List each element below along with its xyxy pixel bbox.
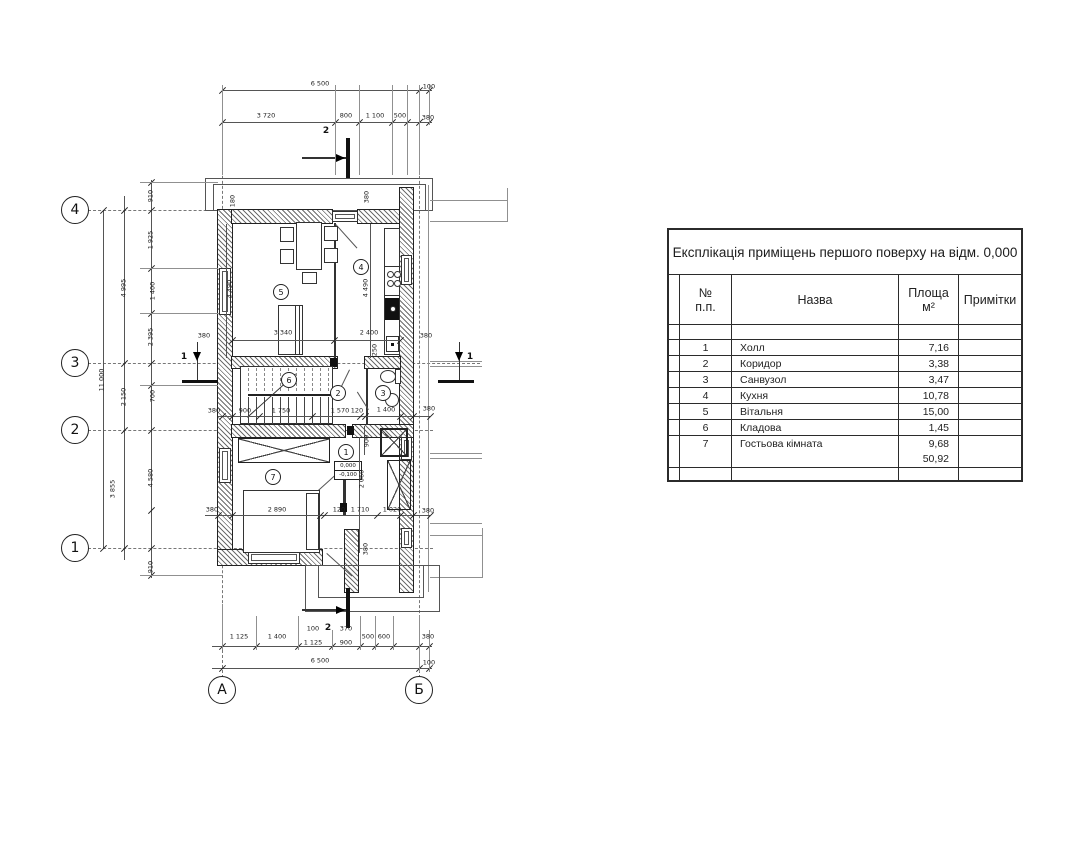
- dimension-label: 100: [307, 626, 319, 633]
- room-number-3: 3: [375, 385, 391, 401]
- section-label: 1: [181, 352, 187, 362]
- wall-top-right: [358, 210, 400, 223]
- dimension-label: 380: [363, 543, 370, 555]
- dimension-label: 1 125: [304, 640, 323, 647]
- room-name: Коридор: [732, 356, 899, 371]
- room-name: Гостьова кімната: [732, 436, 899, 451]
- room-name: Кладова: [732, 420, 899, 435]
- window-left-guest: [219, 448, 231, 483]
- dimension-label: 6 500: [311, 658, 330, 665]
- toilet: [380, 370, 396, 383]
- dimension-label: 4 490: [363, 279, 370, 298]
- dimension-label: 500: [362, 634, 374, 641]
- total-area: 50,92: [899, 451, 959, 467]
- terrace-outline-inner: [213, 184, 426, 211]
- dimension-label: 800: [340, 113, 352, 120]
- room-area: 7,16: [899, 340, 959, 355]
- room-number-1: 1: [338, 444, 354, 460]
- chair: [324, 248, 338, 263]
- dimension-label: 380: [422, 634, 434, 641]
- dimension-label: 1 925: [148, 231, 155, 250]
- room-number-4: 4: [353, 259, 369, 275]
- window-right-lower: [401, 528, 412, 548]
- dimension-label: 250: [372, 344, 379, 356]
- room-number-2: 2: [330, 385, 346, 401]
- dimension-label: 600: [378, 634, 390, 641]
- grid-bubble-a: А: [208, 676, 236, 704]
- table-header-row: № п.п. Назва Площа м² Примітки: [669, 275, 1021, 325]
- row-number: 1: [680, 340, 732, 355]
- room-area: 15,00: [899, 404, 959, 419]
- dimension-label: 3 340: [274, 330, 293, 337]
- dimension-label: 1 400: [150, 282, 157, 301]
- chair: [324, 226, 338, 241]
- dimension-label: 380: [420, 333, 432, 340]
- chair: [280, 227, 294, 242]
- dimension-label: 100: [423, 84, 435, 91]
- section-label: 1: [467, 352, 473, 362]
- room-number-7: 7: [265, 469, 281, 485]
- dimension-label: 120: [333, 507, 345, 514]
- dimension-label: 900: [340, 640, 352, 647]
- dimension-label: 500: [394, 113, 406, 120]
- table-row: 1 Холл 7,16: [669, 340, 1021, 356]
- room-number-6: 6: [281, 372, 297, 388]
- grid-bubble-2: 2: [61, 416, 89, 444]
- dimension-label: 910: [148, 561, 155, 573]
- drawing-sheet: 2 2 1 1 0,000 -0,100 1 2 3 4 5 6 7 4 3 2…: [0, 0, 1080, 857]
- closet: [387, 460, 411, 510]
- dimension-label: 4 580: [148, 469, 155, 488]
- dimension-label: 380: [198, 333, 210, 340]
- table-row: 2 Коридор 3,38: [669, 356, 1021, 372]
- dimension-label: 3 720: [257, 113, 276, 120]
- header-notes: Примітки: [959, 275, 1021, 324]
- dimension-label: 2 395: [148, 328, 155, 347]
- shower-tray: [380, 428, 408, 457]
- room-area: 9,68: [899, 436, 959, 451]
- dimension-label: 2 400: [360, 330, 379, 337]
- header-spacer: [669, 275, 680, 324]
- grid-bubble-1: 1: [61, 534, 89, 562]
- bed-pillow: [306, 493, 319, 550]
- header-area: Площа м²: [899, 275, 959, 324]
- porch-step-outer: [305, 565, 440, 612]
- dimension-label: 900: [239, 408, 251, 415]
- dimension-label: 1 400: [377, 407, 396, 414]
- table-empty-row: [669, 325, 1021, 340]
- side-table: [302, 272, 317, 284]
- dimension-label: 380: [364, 191, 371, 203]
- section-label: 2: [323, 126, 329, 136]
- dimension-label: 4 490: [227, 280, 234, 299]
- dimension-label: 2 060: [359, 470, 366, 489]
- dimension-label: 1 400: [268, 634, 287, 641]
- dimension-label: 700: [150, 390, 157, 402]
- table-row: 3 Санвузол 3,47: [669, 372, 1021, 388]
- dimension-label: 11 000: [99, 369, 106, 392]
- room-number-5: 5: [273, 284, 289, 300]
- balcony-door-opening: [332, 211, 358, 222]
- wall-mid-lower-left: [232, 425, 345, 437]
- grid-bubble-4: 4: [61, 196, 89, 224]
- room-name: Вітальня: [732, 404, 899, 419]
- dimension-label: 100: [423, 660, 435, 667]
- dimension-label: 1 570: [331, 408, 350, 415]
- dimension-label: 380: [422, 115, 434, 122]
- dimension-label: 120: [351, 408, 363, 415]
- table-total-row: 50,92: [669, 451, 1021, 468]
- dimension-label: 900: [364, 435, 371, 447]
- dimension-label: 1 125: [230, 634, 249, 641]
- dimension-label: 180: [230, 195, 237, 207]
- grid-bubble-3: 3: [61, 349, 89, 377]
- table-trailing-row: [669, 468, 1021, 480]
- row-number: 5: [680, 404, 732, 419]
- grid-bubble-b: Б: [405, 676, 433, 704]
- dimension-label: 910: [148, 190, 155, 202]
- wall-mid-upper-right: [365, 357, 400, 368]
- table-row: 7 Гостьова кімната 9,68: [669, 436, 1021, 451]
- dining-table: [296, 222, 322, 270]
- table-row: 5 Вітальня 15,00: [669, 404, 1021, 420]
- dimension-label: 4 995: [121, 279, 128, 298]
- table-row: 4 Кухня 10,78: [669, 388, 1021, 404]
- dimension-label: 2 890: [268, 507, 287, 514]
- dimension-label: 1 750: [272, 408, 291, 415]
- row-number: 6: [680, 420, 732, 435]
- dimension-label: 380: [422, 508, 434, 515]
- dimension-label: 3 855: [110, 480, 117, 499]
- table-title: Експлікація приміщень першого поверху на…: [669, 230, 1021, 275]
- room-name: Холл: [732, 340, 899, 355]
- room-area: 3,38: [899, 356, 959, 371]
- toilet-tank: [395, 369, 401, 384]
- dimension-label: 380: [208, 408, 220, 415]
- row-number: 3: [680, 372, 732, 387]
- row-number: 2: [680, 356, 732, 371]
- explication-table: Експлікація приміщень першого поверху на…: [667, 228, 1023, 482]
- window-right-kitchen: [401, 255, 412, 285]
- dimension-label: 1 020: [383, 507, 402, 514]
- room-area: 3,47: [899, 372, 959, 387]
- room-area: 10,78: [899, 388, 959, 403]
- room-area: 1,45: [899, 420, 959, 435]
- dimension-label: 380: [423, 406, 435, 413]
- chair: [280, 249, 294, 264]
- wardrobe: [238, 438, 330, 463]
- row-number: 4: [680, 388, 732, 403]
- header-name: Назва: [732, 275, 899, 324]
- header-num: № п.п.: [680, 275, 732, 324]
- dimension-label: 1 100: [366, 113, 385, 120]
- dimension-label: 380: [206, 507, 218, 514]
- row-number: 7: [680, 436, 732, 451]
- dimension-label: 1 710: [351, 507, 370, 514]
- section-label: 2: [325, 623, 331, 633]
- room-name: Санвузол: [732, 372, 899, 387]
- dimension-label: 6 500: [311, 81, 330, 88]
- dimension-label: 370: [340, 626, 352, 633]
- table-row: 6 Кладова 1,45: [669, 420, 1021, 436]
- room-name: Кухня: [732, 388, 899, 403]
- dimension-label: 2 150: [121, 388, 128, 407]
